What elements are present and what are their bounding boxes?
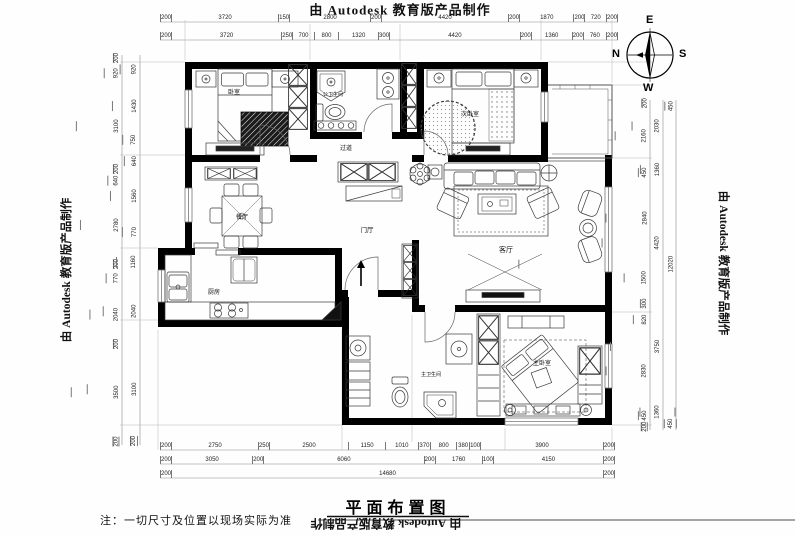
nightstand	[514, 70, 538, 87]
dim-value: 200	[160, 470, 171, 478]
dim-value: 200	[606, 14, 618, 22]
dim-value: 200	[641, 422, 648, 431]
dining-chair	[210, 208, 222, 223]
dim-bottom-row3: 20014680200	[160, 470, 615, 478]
room-label-bedroom1: 卧室	[228, 88, 240, 96]
room-label-dining: 餐厅	[236, 213, 248, 221]
dim-value: 200	[160, 32, 171, 40]
compass-east: E	[646, 14, 653, 26]
dim-value: 3720	[171, 14, 278, 22]
window-dining-left	[185, 188, 192, 222]
sofa	[444, 163, 540, 189]
dim-value: 770	[122, 227, 146, 237]
dining-chair	[243, 236, 258, 248]
dim-value: 200	[641, 99, 647, 108]
dining-chair	[224, 184, 239, 196]
dim-value: 200	[160, 14, 171, 22]
dim-value: 3100	[87, 385, 181, 395]
room-label-corridor: 过道	[340, 144, 352, 152]
master-suite-group	[346, 312, 602, 418]
door-arc	[364, 104, 392, 132]
armchair	[526, 187, 560, 220]
dim-value: 100	[482, 456, 493, 464]
room-label-living: 客厅	[499, 245, 513, 254]
foyer-group	[345, 244, 418, 298]
sheet-title: 平面布置图	[345, 494, 450, 518]
corner-unit	[322, 302, 341, 320]
radiator	[314, 121, 356, 130]
dim-left-col2: 92014307506401560770116020403100200	[129, 55, 139, 445]
counter-bottom	[165, 302, 335, 320]
dim-value: 800	[314, 32, 338, 40]
bedroom1-group	[196, 65, 307, 155]
dim-value: 300	[378, 32, 389, 40]
dim-value: 200	[252, 456, 263, 464]
nightstand	[196, 71, 216, 87]
dim-value: 4420	[389, 32, 520, 40]
dim-value: 12020	[518, 260, 795, 269]
dim-value: 1870	[519, 14, 573, 22]
dim-value: 1320	[338, 32, 378, 40]
compass-west: W	[643, 82, 653, 94]
dim-value: 640	[107, 176, 124, 186]
dim-value: 200	[112, 436, 119, 446]
dim-value: 1010	[385, 442, 418, 450]
sideboard	[205, 167, 257, 180]
dining-group	[205, 167, 272, 248]
dim-value: 300	[640, 299, 649, 308]
dim-value: 1150	[348, 442, 385, 450]
window-master-bottom	[505, 418, 578, 425]
shower	[424, 392, 456, 418]
dim-value: 770	[106, 273, 127, 283]
dim-value: 3100	[76, 121, 156, 131]
dim-value: 200	[113, 339, 119, 349]
dim-value: 2750	[171, 442, 258, 450]
dim-value: 370	[418, 442, 431, 450]
dim-value: 14680	[171, 470, 603, 478]
dim-value: 200	[603, 470, 615, 478]
dim-value: 920	[120, 64, 149, 74]
dim-value: 2500	[269, 442, 348, 450]
master-bed	[501, 334, 579, 413]
room-label-bedroom2: 次卧室	[461, 110, 479, 118]
dim-value: 200	[113, 164, 119, 174]
dim-value: 200	[130, 436, 138, 446]
tall-cabinet	[578, 346, 602, 404]
dim-value: 200	[113, 53, 119, 63]
tea-table	[580, 220, 597, 237]
dim-value: 450	[664, 102, 676, 111]
coffee-table	[478, 194, 516, 214]
fridge	[231, 257, 257, 283]
watermark-left: 由 Autodesk 教育版产品制作	[58, 198, 74, 342]
dim-value: 6060	[263, 456, 423, 464]
dim-value: 250	[281, 32, 292, 40]
dim-bottom-row2: 2003050200606020017601004150200	[160, 456, 615, 464]
dim-right-col3: 45012020450	[666, 100, 675, 430]
dim-value: 200	[160, 456, 171, 464]
dim-value: 250	[258, 442, 269, 450]
dim-value: 3050	[171, 456, 252, 464]
dim-bottom-row1: 2002750250250011501010370800380100390020…	[160, 442, 615, 450]
wardrobe	[477, 314, 500, 416]
sink	[446, 334, 472, 364]
bathroom1-group	[314, 69, 399, 132]
nightstand	[427, 70, 451, 87]
dim-value: 200	[606, 32, 618, 40]
dim-value: 720	[584, 14, 606, 22]
dim-value: 200	[520, 32, 531, 40]
dim-value: 4150	[493, 456, 603, 464]
wardrobe	[289, 65, 308, 130]
watermark-right: 由 Autodesk 教育版产品制作	[716, 191, 732, 335]
console-table	[346, 186, 402, 201]
dim-value: 200	[573, 14, 584, 22]
dim-value: 3900	[480, 442, 603, 450]
shelf	[346, 382, 370, 406]
washing-machine	[346, 336, 370, 360]
watermark-top: 由 Autodesk 教育版产品制作	[309, 0, 490, 19]
sheet-note: 注：一切尺寸及位置以现场实际为准	[100, 512, 292, 528]
floor-lamp	[541, 165, 557, 181]
dim-value: 200	[603, 456, 615, 464]
corridor-group	[338, 162, 430, 201]
room-label-master: 主卧室	[533, 359, 551, 367]
tv-cabinet	[466, 290, 540, 302]
toilet	[316, 104, 345, 121]
dim-value: 1760	[435, 456, 482, 464]
suite-door	[425, 312, 455, 342]
dim-value: 200	[160, 442, 171, 450]
rug-dark	[241, 112, 288, 146]
dim-value: 450	[664, 419, 677, 428]
window-bedroom2-right	[541, 92, 548, 122]
compass-north: N	[612, 48, 620, 60]
armchair	[436, 187, 470, 220]
dimension-lines	[120, 20, 676, 478]
room-label-bath1: 公卫生间	[323, 91, 343, 98]
dim-value: 200	[508, 14, 519, 22]
dim-value: 800	[430, 442, 456, 450]
dim-value: 700	[292, 32, 314, 40]
dim-value: 380	[456, 442, 469, 450]
kitchen-sink	[167, 272, 189, 302]
double-sink	[377, 69, 399, 99]
dim-value: 3720	[171, 32, 281, 40]
compass	[627, 28, 673, 82]
dim-value: 1430	[112, 101, 156, 111]
dim-value: 4420	[602, 238, 714, 247]
dim-value: 1360	[531, 32, 572, 40]
compass-south: S	[679, 48, 686, 60]
dim-value: 150	[278, 14, 289, 22]
dresser	[508, 316, 564, 328]
stove	[210, 303, 248, 318]
room-label-foyer: 门厅	[361, 225, 375, 234]
dim-value: 1560	[110, 191, 158, 201]
window-kitchen-left	[158, 270, 165, 302]
plant	[410, 163, 430, 185]
bay-window	[548, 85, 612, 161]
window-bedroom1-left	[185, 90, 192, 128]
hallway-cabinet	[338, 162, 398, 182]
dim-value: 2030	[632, 121, 684, 130]
dim-value: 100	[469, 442, 480, 450]
dim-value: 640	[124, 157, 144, 167]
dim-value: 200	[572, 32, 583, 40]
dim-value: 750	[122, 135, 146, 145]
dim-value: 760	[583, 32, 606, 40]
dim-value: 3750	[610, 342, 705, 351]
room-label-kitchen: 厨房	[208, 288, 220, 296]
dim-value: 200	[603, 442, 615, 450]
toilet	[392, 377, 408, 407]
bath-cabinet	[346, 362, 370, 380]
room-label-bath2: 主卫生间	[421, 371, 441, 378]
floorplan-sheet: 卧室 公卫生间 次卧室 餐厅 过道 门厅 客厅 厨房 主卫生间 主卧室 2003…	[0, 0, 795, 537]
dim-value: 2040	[103, 306, 166, 316]
dim-value: 200	[424, 456, 435, 464]
dining-chair	[224, 236, 239, 248]
dining-chair	[243, 184, 258, 196]
dim-top-row2: 2003720250700800132030044202001360200760…	[160, 32, 618, 40]
watermark-bottom: 由 Autodesk 教育版产品制作	[311, 516, 462, 533]
living-group	[428, 163, 603, 302]
sliding-door	[194, 243, 240, 255]
accent-chair	[576, 189, 603, 218]
dim-value: 1160	[116, 257, 152, 267]
